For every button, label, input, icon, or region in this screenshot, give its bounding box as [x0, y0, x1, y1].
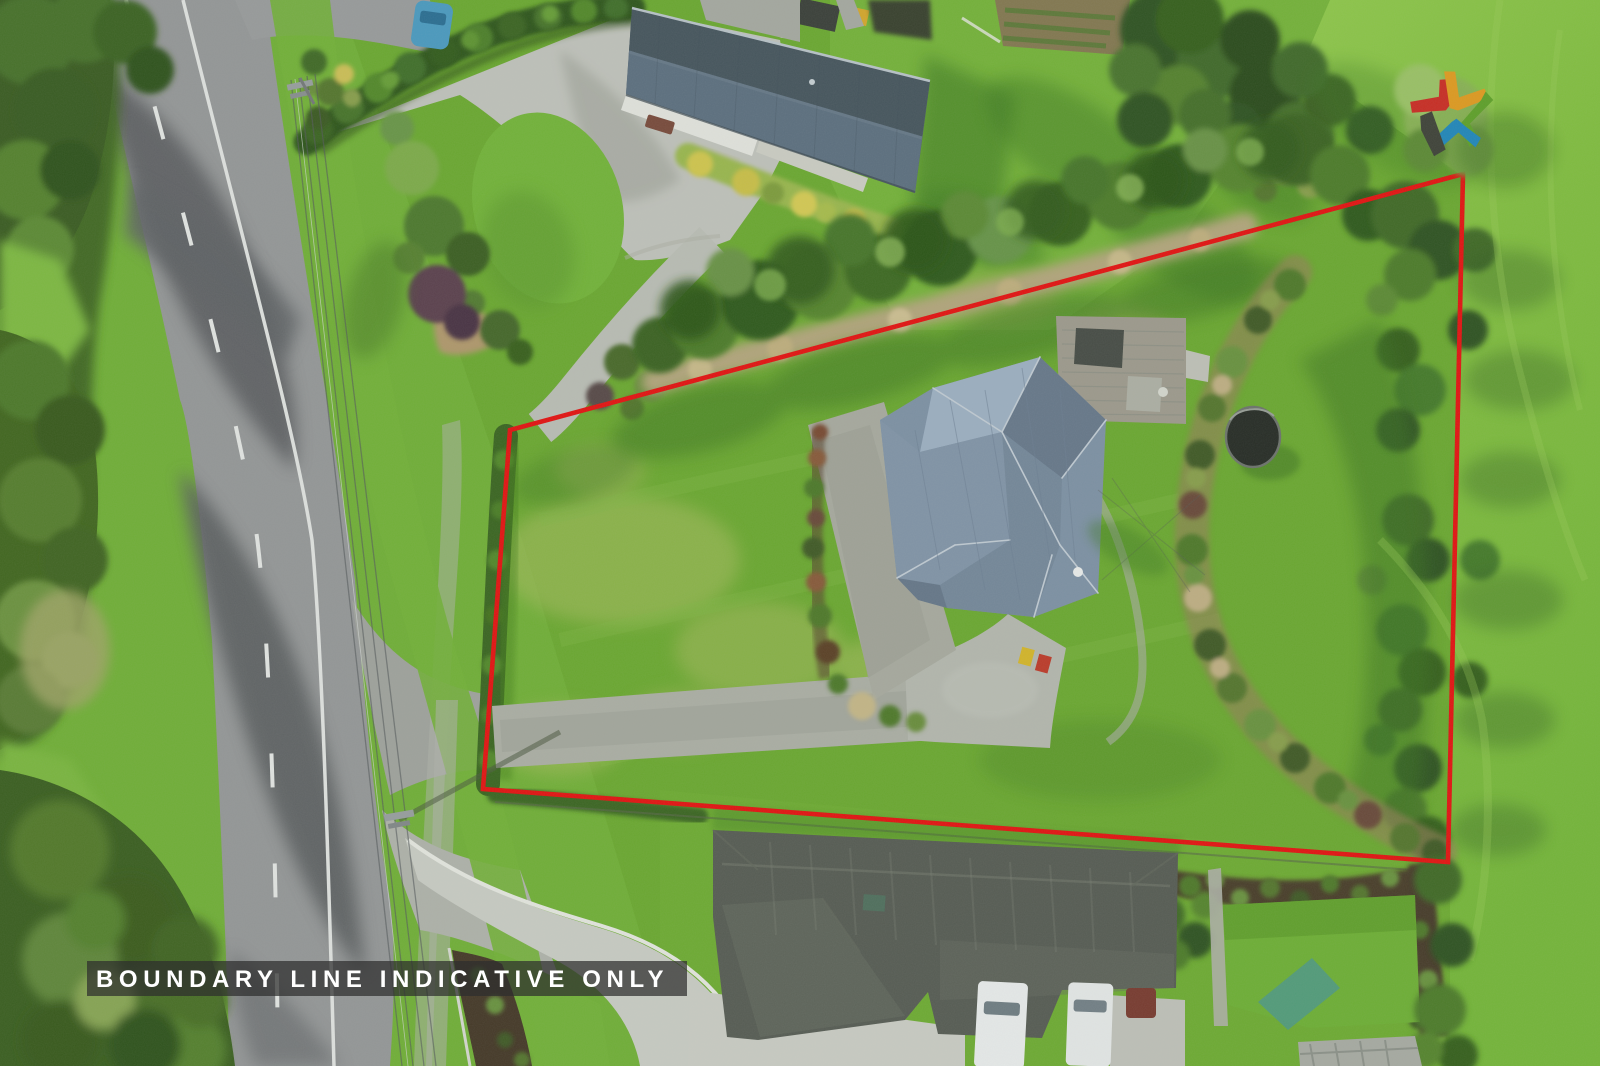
svg-text:BOUNDARY LINE INDICATIVE ONLY: BOUNDARY LINE INDICATIVE ONLY — [96, 966, 669, 993]
